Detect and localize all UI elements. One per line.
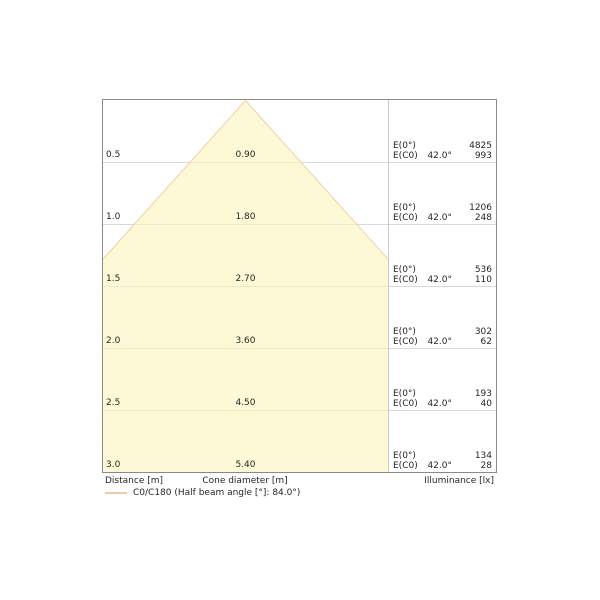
cone-diameter-label: 3.60 (103, 336, 388, 346)
beam-angle-value: 42.0° (427, 151, 452, 161)
e0-label: E(0°) (393, 451, 416, 461)
e0-label: E(0°) (393, 389, 416, 399)
ec0-value: 248 (475, 213, 492, 223)
e0-label: E(0°) (393, 265, 416, 275)
illuminance-cell: E(0°) 134 E(C0) 42.0° 28 (389, 451, 496, 471)
chart-area: 0.5 0.90 E(0°) 4825 E(C0) 42.0° 993 1.0 (102, 99, 497, 473)
legend: C0/C180 (Half beam angle [°]: 84.0°) (105, 487, 300, 498)
rows: 0.5 0.90 E(0°) 4825 E(C0) 42.0° 993 1.0 (103, 100, 496, 472)
ec0-label: E(C0) (393, 399, 418, 409)
illuminance-cell: E(0°) 302 E(C0) 42.0° 62 (389, 327, 496, 347)
e0-label: E(0°) (393, 327, 416, 337)
cone-row: 2.5 4.50 E(0°) 193 E(C0) 42.0° 40 (103, 348, 496, 410)
illuminance-cell: E(0°) 193 E(C0) 42.0° 40 (389, 389, 496, 409)
cone-diameter-label: 1.80 (103, 212, 388, 222)
e0-value: 4825 (469, 141, 492, 151)
illuminance-cell: E(0°) 4825 E(C0) 42.0° 993 (389, 141, 496, 161)
cone-row: 2.0 3.60 E(0°) 302 E(C0) 42.0° 62 (103, 286, 496, 348)
ec0-label: E(C0) (393, 213, 418, 223)
cone-diameter-label: 5.40 (103, 460, 388, 470)
e0-label: E(0°) (393, 141, 416, 151)
e0-value: 1206 (469, 203, 492, 213)
illuminance-cell: E(0°) 536 E(C0) 42.0° 110 (389, 265, 496, 285)
ec0-label: E(C0) (393, 461, 418, 471)
ec0-value: 28 (481, 461, 492, 471)
cone-diameter-label: 0.90 (103, 150, 388, 160)
e0-value: 536 (475, 265, 492, 275)
beam-angle-value: 42.0° (427, 337, 452, 347)
illuminance-axis-label: Illuminance [lx] (424, 476, 494, 486)
e0-value: 302 (475, 327, 492, 337)
cone-diameter-label: 2.70 (103, 274, 388, 284)
beam-angle-value: 42.0° (427, 461, 452, 471)
e0-value: 134 (475, 451, 492, 461)
ec0-label: E(C0) (393, 275, 418, 285)
cone-diameter-axis-label: Cone diameter [m] (102, 476, 388, 486)
ec0-value: 993 (475, 151, 492, 161)
e0-label: E(0°) (393, 203, 416, 213)
beam-angle-value: 42.0° (427, 275, 452, 285)
cone-row: 3.0 5.40 E(0°) 134 E(C0) 42.0° 28 (103, 410, 496, 472)
legend-line-swatch (105, 492, 127, 494)
cone-row: 1.0 1.80 E(0°) 1206 E(C0) 42.0° 248 (103, 162, 496, 224)
ec0-value: 110 (475, 275, 492, 285)
cone-diagram: 0.5 0.90 E(0°) 4825 E(C0) 42.0° 993 1.0 (0, 0, 600, 600)
cone-diameter-label: 4.50 (103, 398, 388, 408)
ec0-value: 40 (481, 399, 492, 409)
ec0-label: E(C0) (393, 337, 418, 347)
e0-value: 193 (475, 389, 492, 399)
cone-row: 0.5 0.90 E(0°) 4825 E(C0) 42.0° 993 (103, 100, 496, 162)
axis-labels: Distance [m] Cone diameter [m] Illuminan… (102, 476, 497, 487)
ec0-value: 62 (481, 337, 492, 347)
legend-label: C0/C180 (Half beam angle [°]: 84.0°) (133, 488, 300, 498)
beam-angle-value: 42.0° (427, 399, 452, 409)
cone-row: 1.5 2.70 E(0°) 536 E(C0) 42.0° 110 (103, 224, 496, 286)
illuminance-cell: E(0°) 1206 E(C0) 42.0° 248 (389, 203, 496, 223)
beam-angle-value: 42.0° (427, 213, 452, 223)
ec0-label: E(C0) (393, 151, 418, 161)
